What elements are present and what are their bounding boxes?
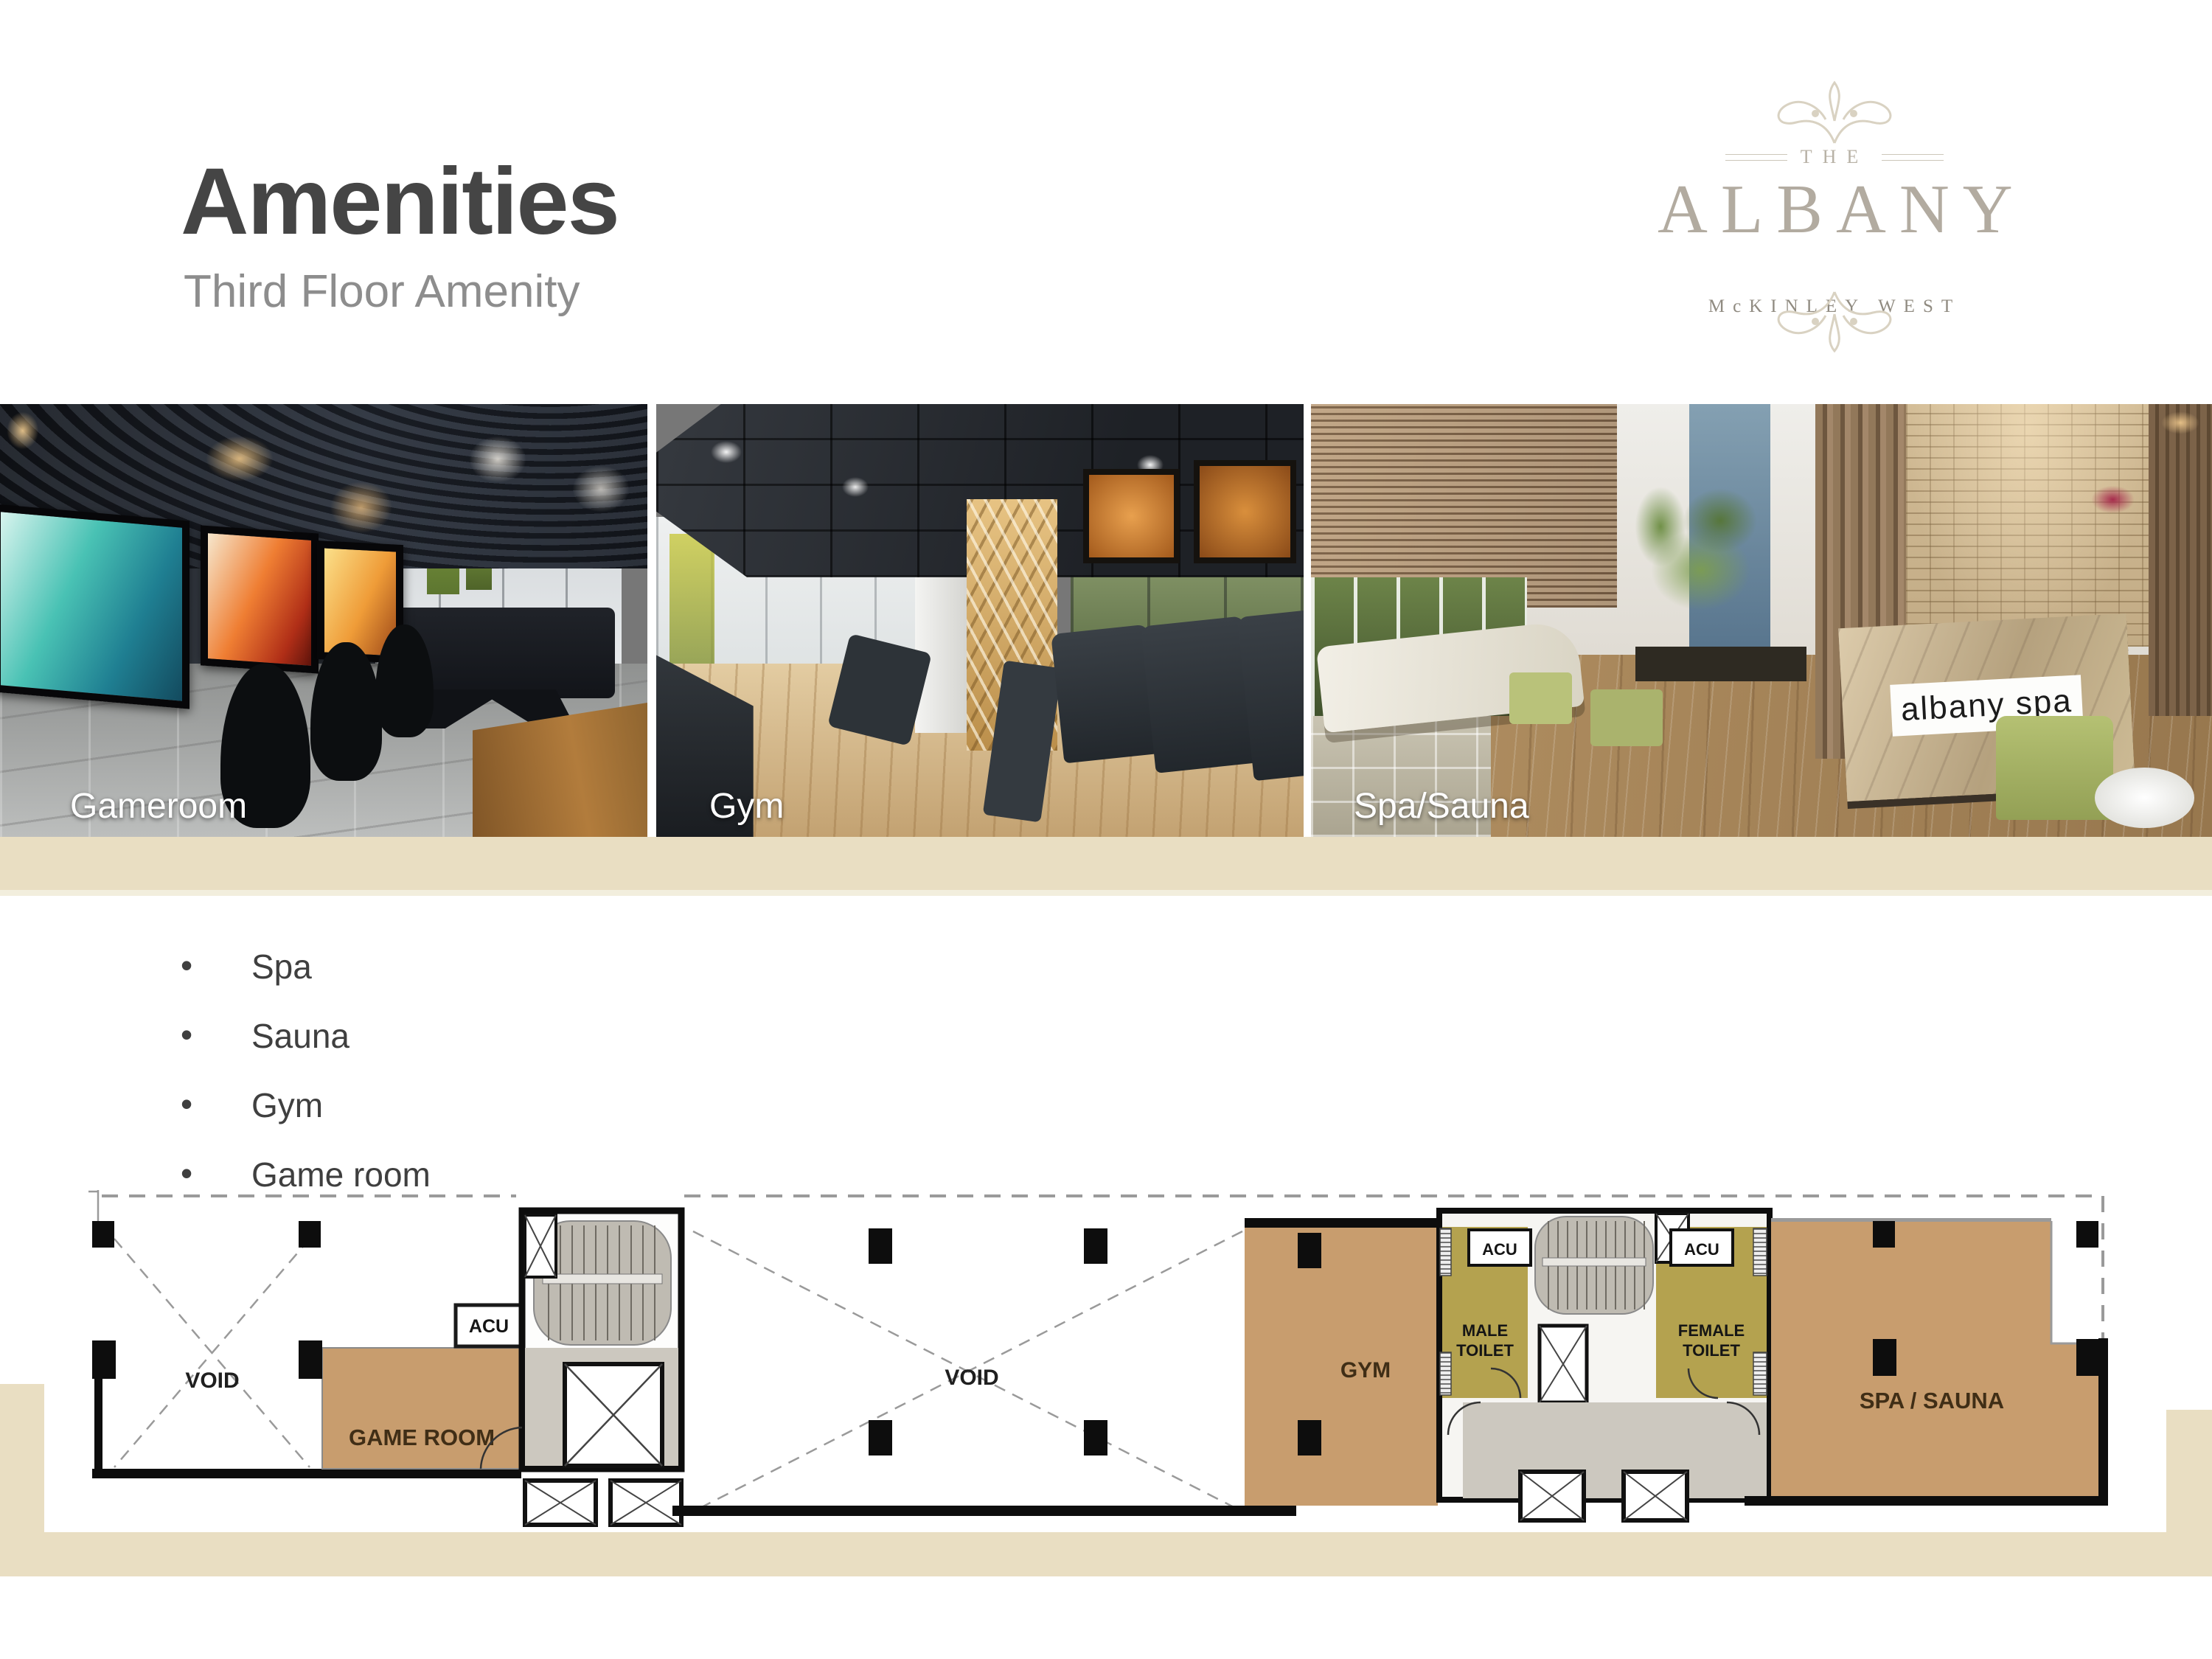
female-toilet-label: TOILET <box>1683 1341 1740 1360</box>
plan-spa-sauna: SPA / SAUNA <box>1745 1218 2108 1506</box>
void-middle-label: VOID <box>945 1366 998 1390</box>
game-room-label: GAME ROOM <box>349 1425 495 1450</box>
void-left-label: VOID <box>185 1368 239 1393</box>
gym-artwork <box>669 534 714 681</box>
spa-bamboo-plants <box>1627 473 1816 664</box>
gym-photo: Gym <box>656 404 1304 837</box>
gym-tv-screen <box>1083 469 1179 563</box>
spa-wood-panel <box>2149 404 2212 716</box>
plan-acu-male: ACU <box>1469 1230 1531 1265</box>
list-item: Spa <box>181 947 431 1016</box>
acu-male-label: ACU <box>1482 1240 1517 1259</box>
list-item: Gym <box>181 1085 431 1155</box>
albany-logo: THE ALBANY McKINLEY WEST <box>1658 83 2011 355</box>
male-toilet-label: TOILET <box>1456 1341 1514 1360</box>
logo-the: THE <box>1801 146 1869 168</box>
gameroom-photo: Gameroom <box>0 404 647 837</box>
spa-photo-label: Spa/Sauna <box>1354 786 1529 827</box>
gameroom-tv-screen <box>0 504 189 709</box>
page-subtitle: Third Floor Amenity <box>184 265 580 318</box>
spa-stool <box>1509 672 1573 724</box>
plan-acu-left: ACU <box>456 1305 522 1346</box>
spa-orchid <box>2086 482 2140 517</box>
floor-plan: VOID GAME ROOM ACU VOID <box>44 1187 2138 1556</box>
gameroom-tv-screen <box>201 526 319 674</box>
gym-label: GYM <box>1340 1358 1391 1382</box>
page-title: Amenities <box>181 147 619 256</box>
plan-middle-core: ACU ACU MALE TOILET FEMALE TOILET <box>1439 1211 1770 1520</box>
plan-gym: GYM <box>1245 1218 1438 1506</box>
list-item: Sauna <box>181 1016 431 1085</box>
plan-game-room: GAME ROOM <box>322 1348 521 1469</box>
male-toilet-label: MALE <box>1462 1321 1508 1340</box>
amenities-bullet-list: Spa Sauna Gym Game room <box>181 947 431 1224</box>
spa-photo: albany spa Spa/Sauna <box>1311 404 2212 837</box>
female-toilet-label: FEMALE <box>1678 1321 1745 1340</box>
acu-left-label: ACU <box>469 1316 509 1337</box>
logo-rule-left <box>1725 154 1787 161</box>
slide: { "header": { "title": "Amenities", "sub… <box>0 0 2212 1659</box>
gameroom-photo-label: Gameroom <box>70 786 247 827</box>
spa-stool <box>1590 689 1663 745</box>
plan-acu-female: ACU <box>1671 1230 1733 1265</box>
spa-stone-wall <box>1906 404 2149 647</box>
logo-the-row: THE <box>1658 146 2011 168</box>
logo-name: ALBANY <box>1658 170 2011 249</box>
logo-rule-right <box>1882 154 1944 161</box>
spa-sauna-label: SPA / SAUNA <box>1860 1388 2004 1413</box>
gym-photo-label: Gym <box>709 786 784 827</box>
plan-void-middle: VOID <box>672 1231 1296 1516</box>
acu-female-label: ACU <box>1684 1240 1719 1259</box>
logo-flourish-top-icon <box>1739 80 1930 147</box>
gym-tv-screen <box>1194 460 1296 563</box>
frame-strip-right <box>2166 1410 2212 1576</box>
accent-band <box>0 837 2212 896</box>
logo-flourish-bottom-icon <box>1739 288 1930 352</box>
frame-strip-bottom <box>0 1532 2212 1576</box>
spa-side-table <box>2095 768 2194 828</box>
